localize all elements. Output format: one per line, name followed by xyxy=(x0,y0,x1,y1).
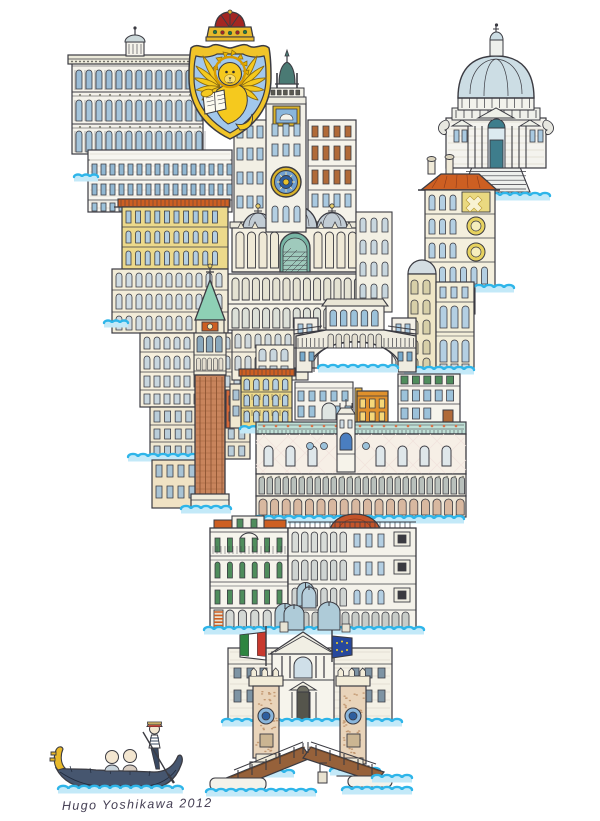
svg-text:Hugo Yoshikawa 2012: Hugo Yoshikawa 2012 xyxy=(62,796,213,813)
